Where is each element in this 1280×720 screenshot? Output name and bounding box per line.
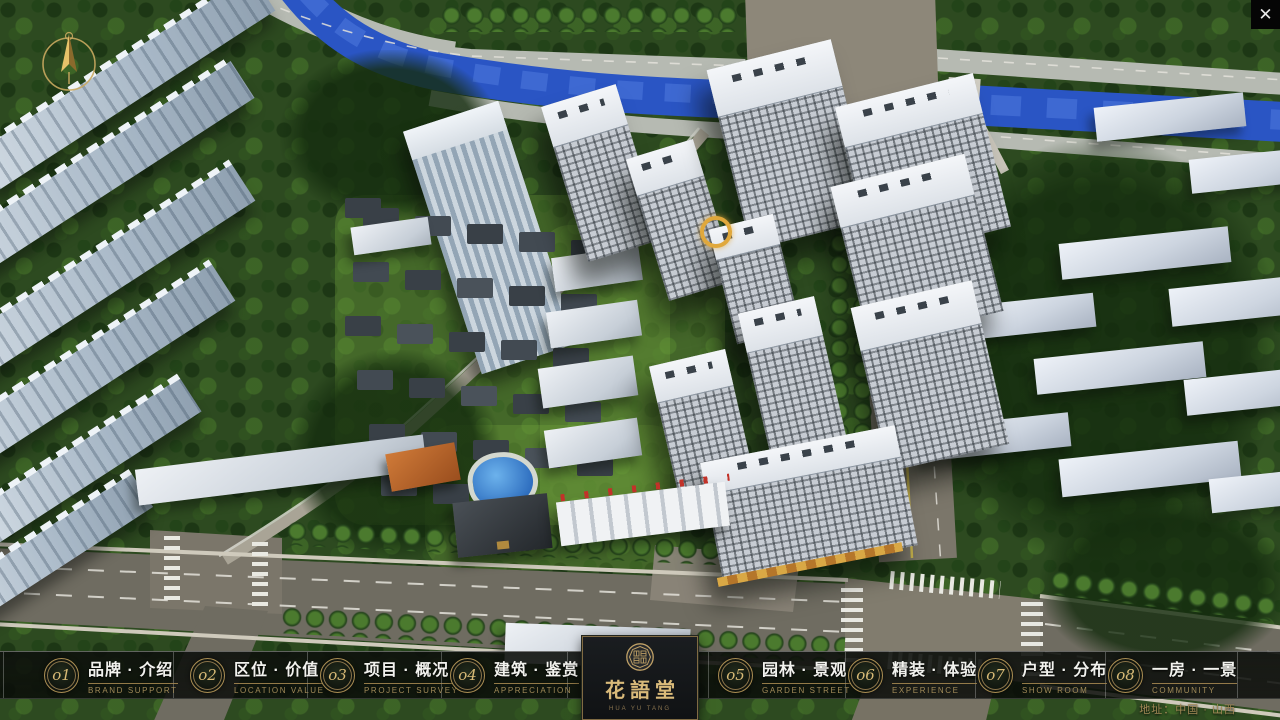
nav-text: 区位 · 价值 LOCATION VALUE [234,656,325,695]
nav-badge-o6: o6 [848,658,883,693]
project-logo-panel[interactable]: 花語堂 HUA YU TANG [582,636,698,720]
nav-badge-o3: o3 [320,658,355,693]
nav-label: 园林 · 景观 [762,656,851,684]
address-text: 地址：中国 · 山西 [1139,701,1236,717]
nav-badge-o4: o4 [450,658,485,693]
nav-sublabel: PROJECT SURVEY [364,686,459,695]
chinese-gate-building [452,493,552,558]
nav-sublabel: BRAND SUPPORT [88,686,178,695]
nav-label: 区位 · 价值 [234,656,325,684]
nav-text: 品牌 · 介绍 BRAND SUPPORT [88,656,178,695]
nav-sublabel: GARDEN STREET [762,686,851,695]
nav-badge-number: o5 [726,666,745,684]
masterplan-render [0,0,1280,720]
nav-text: 园林 · 景观 GARDEN STREET [762,656,851,695]
nav-sublabel: APPRECIATION [494,686,579,695]
courtyard-houses [345,198,381,218]
nav-badge-o7: o7 [978,658,1013,693]
street-trees [440,6,740,32]
project-name: 花語堂 [600,674,680,703]
sales-presentation-window: ✕ o1 品牌 · 介绍 BRAND SUPPORT o2 区位 · 价值 LO… [0,0,1280,720]
nav-label: 一房 · 一景 [1152,656,1237,684]
nav-sublabel: SHOW ROOM [1022,686,1107,695]
nav-item-location-value[interactable]: o2 区位 · 价值 LOCATION VALUE [190,656,325,694]
close-icon: ✕ [1258,6,1272,23]
nav-badge-o1: o1 [44,658,79,693]
nav-text: 精装 · 体验 EXPERIENCE [892,656,977,695]
nav-badge-number: o8 [1116,666,1135,684]
nav-label: 建筑 · 鉴赏 [494,656,579,684]
nav-sublabel: EXPERIENCE [892,686,977,695]
nav-sublabel: LOCATION VALUE [234,686,325,695]
nav-item-architecture[interactable]: o4 建筑 · 鉴赏 APPRECIATION [450,656,579,694]
nav-label: 项目 · 概况 [364,656,459,684]
nav-badge-o8: o8 [1108,658,1143,693]
close-button[interactable]: ✕ [1251,0,1280,29]
nav-separator [3,652,4,698]
nav-sublabel: COMMUNITY [1152,686,1237,695]
project-name-latin: HUA YU TANG [609,706,671,712]
nav-item-garden-landscape[interactable]: o5 园林 · 景观 GARDEN STREET [718,656,851,694]
nav-item-floorplans[interactable]: o7 户型 · 分布 SHOW ROOM [978,656,1107,694]
nav-badge-number: o4 [458,666,477,684]
nav-badge-number: o1 [52,666,71,684]
nav-item-interior-experience[interactable]: o6 精装 · 体验 EXPERIENCE [848,656,977,694]
nav-badge-number: o3 [328,666,347,684]
nav-text: 一房 · 一景 COMMUNITY [1152,656,1237,695]
nav-label: 品牌 · 介绍 [88,656,178,684]
nav-item-project-survey[interactable]: o3 项目 · 概况 PROJECT SURVEY [320,656,459,694]
nav-separator [708,652,709,698]
nav-badge-o2: o2 [190,658,225,693]
nav-item-brand-intro[interactable]: o1 品牌 · 介绍 BRAND SUPPORT [44,656,178,694]
nav-badge-number: o6 [856,666,875,684]
nav-text: 户型 · 分布 SHOW ROOM [1022,656,1107,695]
seal-icon [625,642,655,672]
nav-text: 建筑 · 鉴赏 APPRECIATION [494,656,579,695]
compass-icon [36,26,102,101]
nav-badge-number: o2 [198,666,217,684]
nav-badge-o5: o5 [718,658,753,693]
nav-text: 项目 · 概况 PROJECT SURVEY [364,656,459,695]
nav-item-room-views[interactable]: o8 一房 · 一景 COMMUNITY [1108,656,1237,694]
nav-badge-number: o7 [986,666,1005,684]
nav-label: 精装 · 体验 [892,656,977,684]
nav-label: 户型 · 分布 [1022,656,1107,684]
